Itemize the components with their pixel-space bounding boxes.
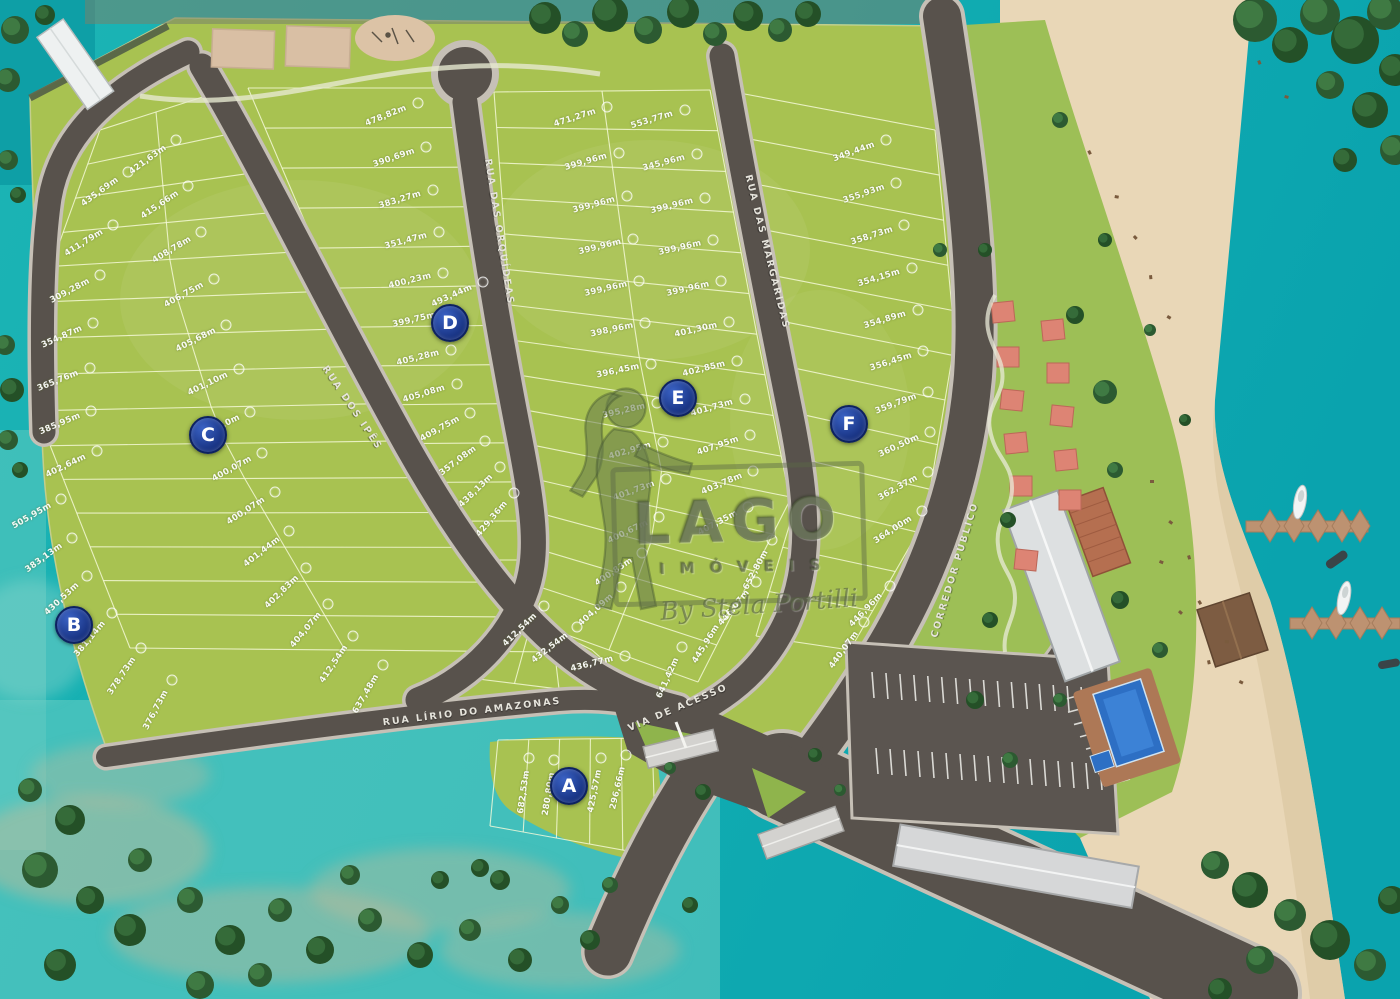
section-marker-a[interactable]: A: [550, 767, 588, 805]
lot-number-badge: [322, 598, 333, 609]
lot-number-badge: [657, 436, 668, 447]
kiosk: [1054, 449, 1078, 471]
lot-number-badge: [549, 755, 560, 766]
lot-number-badge: [378, 659, 389, 670]
lot-number-badge: [256, 447, 267, 458]
sport-court-1: [211, 29, 274, 69]
lot-number-badge: [421, 141, 432, 152]
lot-number-badge: [596, 752, 607, 763]
lot-number-badge: [748, 465, 759, 476]
lot-number-badge: [427, 185, 438, 196]
lot-number-badge: [899, 220, 910, 231]
lot-number-badge: [86, 405, 97, 416]
kiosk: [1047, 363, 1069, 383]
lot-number-badge: [660, 474, 671, 485]
lot-number-badge: [283, 526, 294, 537]
lot-number-badge: [233, 364, 244, 375]
section-marker-c[interactable]: C: [189, 416, 227, 454]
lot-number-badge: [301, 563, 312, 574]
sport-court-2: [285, 26, 350, 68]
lot-number-badge: [245, 406, 256, 417]
lot-number-badge: [916, 506, 927, 517]
lot-number-badge: [523, 753, 534, 764]
lot-number-badge: [478, 277, 489, 288]
lot-number-badge: [637, 547, 648, 558]
lot-number-badge: [539, 601, 550, 612]
kiosk: [1004, 432, 1028, 454]
lot-number-badge: [884, 580, 895, 591]
site-plan: LAGO IMÓVEIS By Stela Portilli RUA DOS I…: [0, 0, 1400, 999]
lot-number-badge: [621, 191, 632, 202]
lot-number-badge: [922, 386, 933, 397]
lot-number-badge: [634, 276, 645, 287]
lot-number-badge: [412, 98, 423, 109]
lot-number-badge: [676, 641, 687, 652]
section-marker-f[interactable]: F: [830, 405, 868, 443]
kiosk: [1000, 389, 1024, 411]
lot-number-badge: [495, 462, 506, 473]
lot-number-badge: [348, 630, 359, 641]
lot-number-badge: [208, 273, 219, 284]
lot-number-badge: [136, 642, 147, 653]
lot-number-badge: [891, 177, 902, 188]
lot-number-badge: [95, 270, 106, 281]
lot-number-badge: [922, 466, 933, 477]
kiosk: [1014, 549, 1038, 571]
lot-number-badge: [269, 487, 280, 498]
lot-number-badge: [653, 512, 664, 523]
lot-number-badge: [699, 192, 710, 203]
lot-number-badge: [445, 344, 456, 355]
lot-number-badge: [508, 487, 519, 498]
lot-number-badge: [84, 363, 95, 374]
lot-number-badge: [619, 650, 630, 661]
lot-number-badge: [81, 570, 92, 581]
lot-number-badge: [731, 355, 742, 366]
lot-number-badge: [221, 319, 232, 330]
lot-number-badge: [750, 576, 761, 587]
lot-number-badge: [56, 494, 67, 505]
lot-number-badge: [170, 135, 181, 146]
lot-number-badge: [480, 435, 491, 446]
kiosk: [991, 301, 1015, 323]
lot-number-badge: [602, 102, 613, 113]
kiosk: [1050, 405, 1074, 427]
section-marker-d[interactable]: D: [431, 304, 469, 342]
lot-number-badge: [66, 533, 77, 544]
lot-number-badge: [858, 617, 869, 628]
lot-number-badge: [437, 267, 448, 278]
lot-number-badge: [880, 135, 891, 146]
lot-number-badge: [743, 502, 754, 513]
lot-number-badge: [912, 305, 923, 316]
lot-number-badge: [679, 105, 690, 116]
lot-number-badge: [616, 582, 627, 593]
lot-number-badge: [451, 379, 462, 390]
lot-number-badge: [166, 674, 177, 685]
lot-number-badge: [571, 622, 582, 633]
lot-number-badge: [766, 534, 777, 545]
lot-number-badge: [745, 429, 756, 440]
lot-number-badge: [708, 235, 719, 246]
kiosk: [1059, 490, 1081, 510]
lot-number-badge: [464, 407, 475, 418]
lot-number-badge: [646, 358, 657, 369]
lot-number-badge: [640, 317, 651, 328]
lot-number-badge: [433, 227, 444, 238]
lot-number-badge: [716, 276, 727, 287]
lot-number-badge: [107, 219, 118, 230]
lot-number-badge: [88, 318, 99, 329]
lot-number-badge: [739, 393, 750, 404]
lot-number-badge: [196, 227, 207, 238]
lot-number-badge: [924, 426, 935, 437]
lot-number-badge: [719, 610, 730, 621]
lot-number-badge: [106, 607, 117, 618]
lot-number-badge: [918, 346, 929, 357]
section-marker-e[interactable]: E: [659, 379, 697, 417]
section-marker-b[interactable]: B: [55, 606, 93, 644]
lot-number-badge: [183, 180, 194, 191]
lot-number-badge: [91, 446, 102, 457]
lot-number-badge: [691, 149, 702, 160]
top-tree-band: [85, 0, 955, 24]
kiosk: [1041, 319, 1065, 341]
lot-number-badge: [627, 233, 638, 244]
lot-number-badge: [906, 263, 917, 274]
lot-number-badge: [620, 749, 631, 760]
lot-number-badge: [613, 147, 624, 158]
lot-number-badge: [724, 317, 735, 328]
